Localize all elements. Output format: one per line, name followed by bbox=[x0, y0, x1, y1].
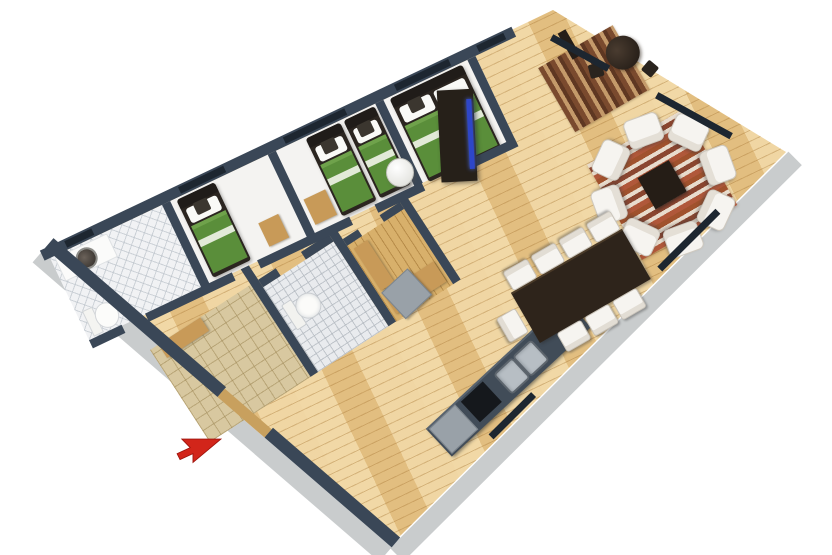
tv-cabinet bbox=[437, 89, 478, 183]
blanket-fold bbox=[198, 225, 235, 248]
tv-screen bbox=[466, 99, 475, 169]
water-heater bbox=[386, 158, 414, 187]
red-arrow-cursor-icon bbox=[176, 438, 222, 484]
window-entry bbox=[476, 33, 506, 52]
cursor-arrow-path bbox=[177, 439, 221, 462]
blanket-fold bbox=[327, 165, 361, 186]
entry-chair-dark-2 bbox=[641, 60, 659, 78]
floorplan-3d-render: { "scene": { "kind": "3d-floorplan-isome… bbox=[0, 0, 832, 555]
